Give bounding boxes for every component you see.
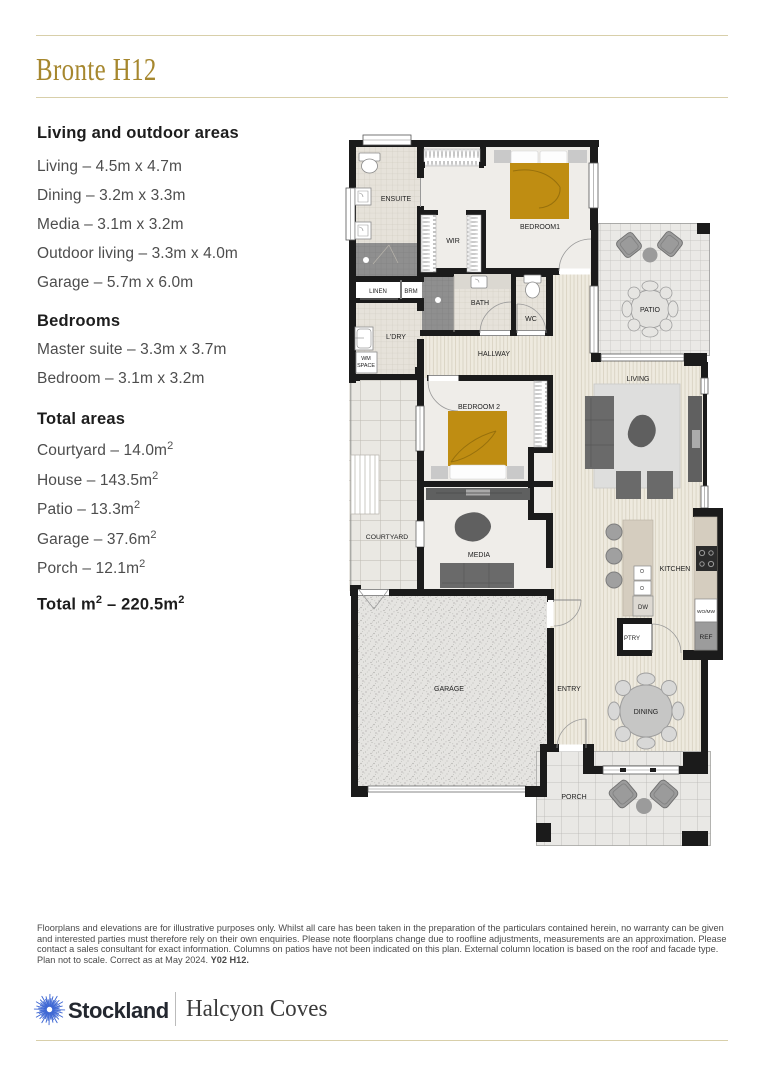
svg-text:DINING: DINING xyxy=(634,709,659,716)
svg-text:LIVING: LIVING xyxy=(627,376,650,383)
svg-text:WC: WC xyxy=(525,316,537,323)
svg-text:KITCHEN: KITCHEN xyxy=(660,566,691,573)
svg-text:WM: WM xyxy=(361,356,371,362)
svg-text:WIR: WIR xyxy=(446,238,460,245)
svg-text:LINEN: LINEN xyxy=(369,289,387,295)
svg-text:PORCH: PORCH xyxy=(561,794,586,801)
svg-text:COURTYARD: COURTYARD xyxy=(366,534,409,541)
svg-text:WO/MW: WO/MW xyxy=(697,609,716,615)
svg-text:BEDROOM1: BEDROOM1 xyxy=(520,224,560,231)
svg-text:L'DRY: L'DRY xyxy=(386,334,406,341)
svg-text:PATIO: PATIO xyxy=(640,307,661,314)
svg-text:PTRY: PTRY xyxy=(624,636,640,642)
svg-text:GARAGE: GARAGE xyxy=(434,686,464,693)
svg-text:HALLWAY: HALLWAY xyxy=(478,351,510,358)
svg-text:ENTRY: ENTRY xyxy=(557,686,581,693)
svg-text:BEDROOM 2: BEDROOM 2 xyxy=(458,404,500,411)
svg-text:REF: REF xyxy=(700,634,713,641)
svg-text:ENSUITE: ENSUITE xyxy=(381,196,412,203)
svg-text:BATH: BATH xyxy=(471,300,489,307)
svg-text:SPACE: SPACE xyxy=(357,363,375,369)
svg-text:DW: DW xyxy=(638,605,648,611)
svg-text:MEDIA: MEDIA xyxy=(468,552,491,559)
svg-text:BRM: BRM xyxy=(404,289,417,295)
